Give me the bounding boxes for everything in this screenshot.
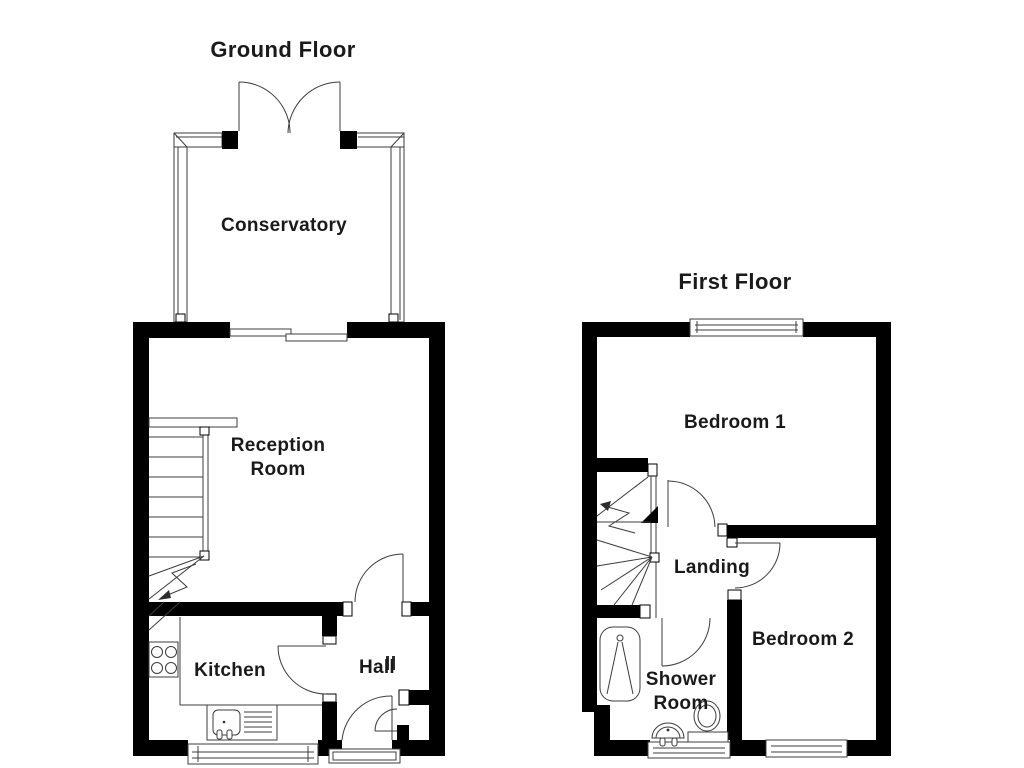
floorplan-canvas: Ground Floor — [0, 0, 1024, 768]
first-floor-plan: First Floor — [582, 269, 891, 758]
label-landing: Landing — [674, 557, 750, 578]
bedroom1-window — [690, 319, 803, 336]
bedroom1-door — [668, 480, 715, 527]
staircase-ground — [149, 418, 237, 630]
kitchen-window — [188, 744, 318, 764]
label-reception-line1: Reception — [231, 435, 326, 456]
patio-door-panel — [286, 334, 347, 341]
sink-unit — [207, 705, 277, 740]
patio-door-panel — [230, 329, 291, 336]
label-conservatory: Conservatory — [221, 215, 347, 236]
label-reception-line2: Room — [250, 459, 305, 480]
label-hall: Hall — [359, 657, 395, 678]
label-bedroom2: Bedroom 2 — [752, 629, 854, 650]
reception-hall-door — [355, 554, 403, 602]
shower-room-door — [662, 618, 710, 666]
conservatory-french-doors — [239, 82, 340, 133]
bedroom2-window — [766, 740, 847, 757]
first-floor-title: First Floor — [678, 269, 791, 294]
conservatory-structure — [174, 82, 404, 322]
label-shower-line2: Room — [653, 693, 708, 714]
label-shower-line1: Shower — [646, 669, 717, 690]
label-bedroom1: Bedroom 1 — [684, 412, 786, 433]
ground-floor-plan: Ground Floor — [133, 37, 445, 764]
label-kitchen: Kitchen — [194, 660, 266, 681]
shower-bath — [600, 627, 640, 701]
kitchen-door — [278, 646, 326, 694]
staircase-first — [597, 476, 659, 618]
ground-floor-title: Ground Floor — [210, 37, 355, 62]
cupboard-door — [375, 709, 397, 731]
front-door — [329, 696, 400, 763]
